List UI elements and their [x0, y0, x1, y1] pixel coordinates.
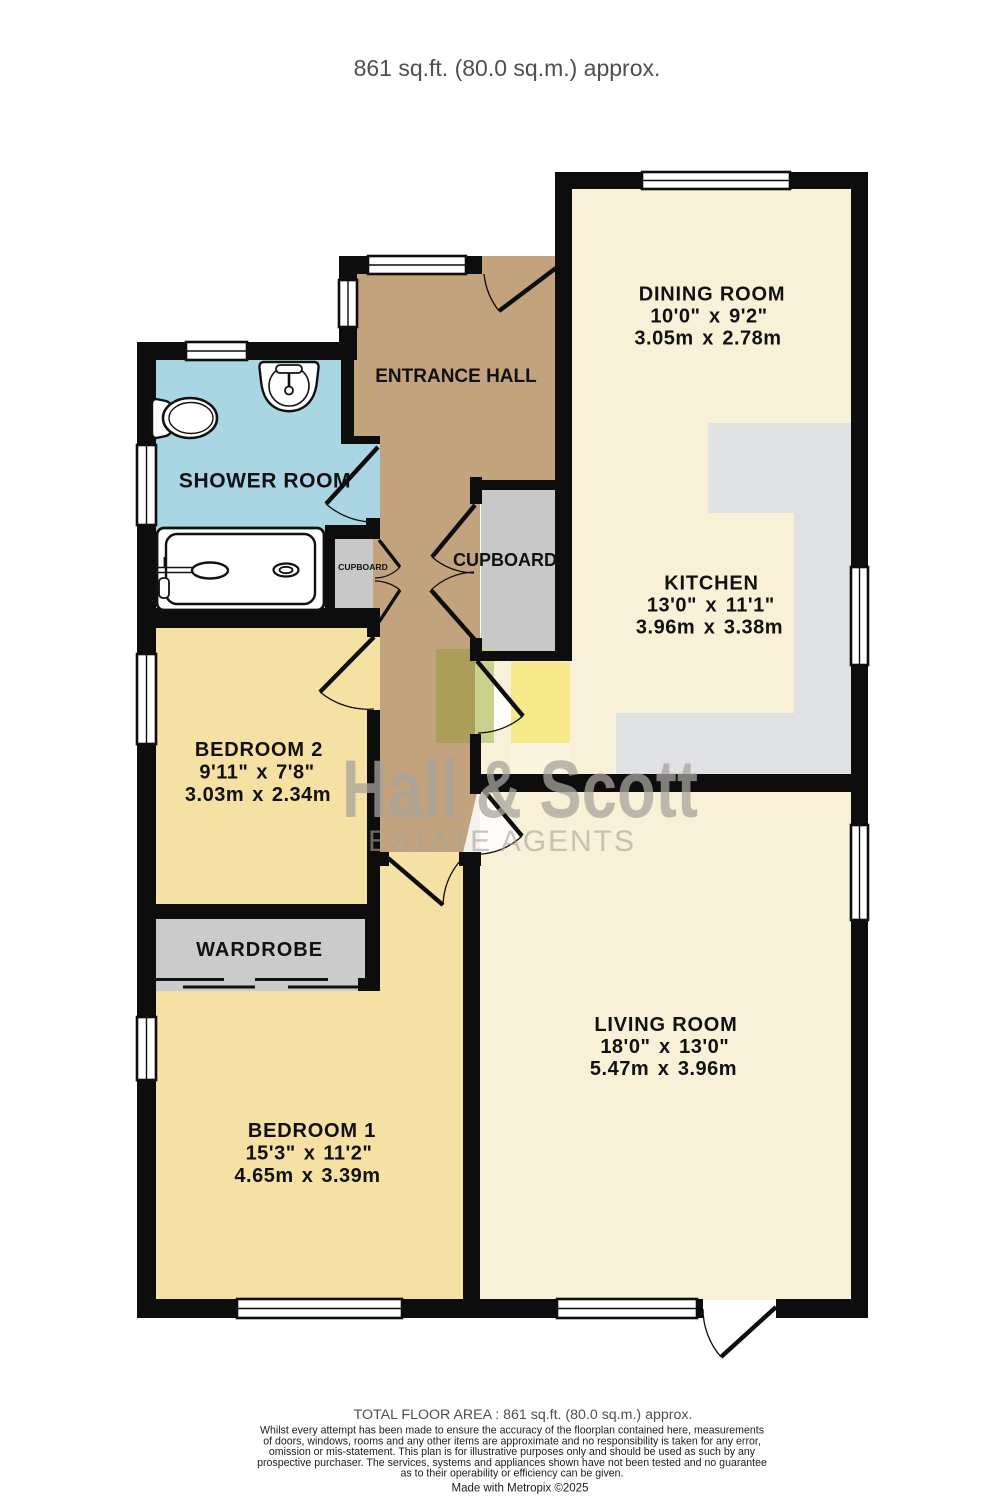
svg-text:Made with Metropix ©2025: Made with Metropix ©2025: [452, 1483, 589, 1495]
svg-text:ESTATE AGENTS: ESTATE AGENTS: [368, 825, 638, 858]
svg-text:3.96m x 3.38m: 3.96m x 3.38m: [636, 617, 783, 639]
svg-text:5.47m x 3.96m: 5.47m x 3.96m: [590, 1058, 737, 1080]
svg-text:as to their operability or eff: as to their operability or efficiency ca…: [401, 1468, 624, 1480]
svg-text:Hall & Scott: Hall & Scott: [342, 744, 698, 835]
svg-text:CUPBOARD: CUPBOARD: [338, 562, 388, 572]
svg-text:KITCHEN: KITCHEN: [664, 573, 759, 595]
svg-text:WARDROBE: WARDROBE: [196, 939, 323, 961]
svg-text:18'0" x 13'0": 18'0" x 13'0": [600, 1036, 729, 1058]
svg-text:ENTRANCE HALL: ENTRANCE HALL: [375, 366, 537, 387]
svg-text:3.05m x 2.78m: 3.05m x 2.78m: [634, 328, 781, 350]
svg-text:BEDROOM 2: BEDROOM 2: [195, 739, 323, 761]
svg-text:TOTAL FLOOR AREA : 861 sq.ft.: TOTAL FLOOR AREA : 861 sq.ft. (80.0 sq.m…: [354, 1407, 693, 1423]
svg-text:LIVING ROOM: LIVING ROOM: [594, 1014, 737, 1036]
svg-text:9'11" x 7'8": 9'11" x 7'8": [199, 762, 314, 784]
svg-text:BEDROOM 1: BEDROOM 1: [248, 1120, 376, 1142]
svg-text:3.03m x 2.34m: 3.03m x 2.34m: [185, 784, 331, 806]
svg-text:DINING ROOM: DINING ROOM: [639, 284, 786, 306]
svg-text:4.65m x 3.39m: 4.65m x 3.39m: [234, 1165, 380, 1187]
svg-text:13'0" x 11'1": 13'0" x 11'1": [647, 595, 775, 617]
svg-text:15'3" x 11'2": 15'3" x 11'2": [246, 1143, 373, 1165]
svg-text:861 sq.ft. (80.0 sq.m.) approx: 861 sq.ft. (80.0 sq.m.) approx.: [354, 55, 661, 81]
svg-text:CUPBOARD: CUPBOARD: [453, 550, 557, 570]
svg-text:10'0" x 9'2": 10'0" x 9'2": [650, 306, 767, 328]
svg-text:SHOWER ROOM: SHOWER ROOM: [179, 470, 351, 493]
